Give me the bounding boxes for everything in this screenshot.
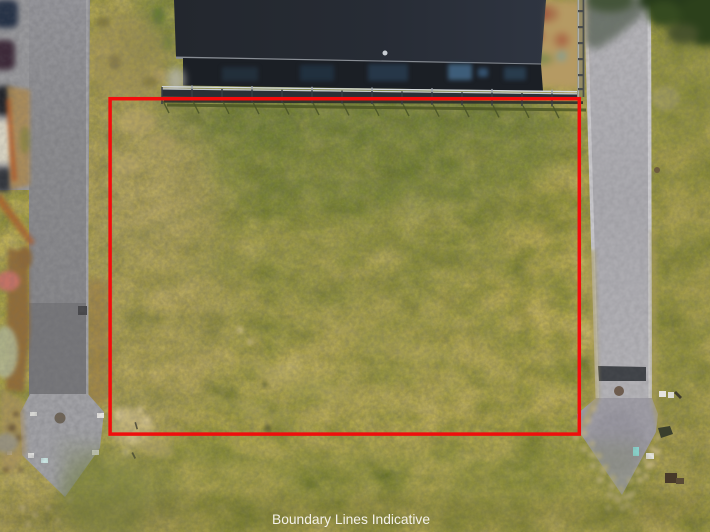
svg-text:Boundary Lines Indicative: Boundary Lines Indicative [272,512,430,527]
